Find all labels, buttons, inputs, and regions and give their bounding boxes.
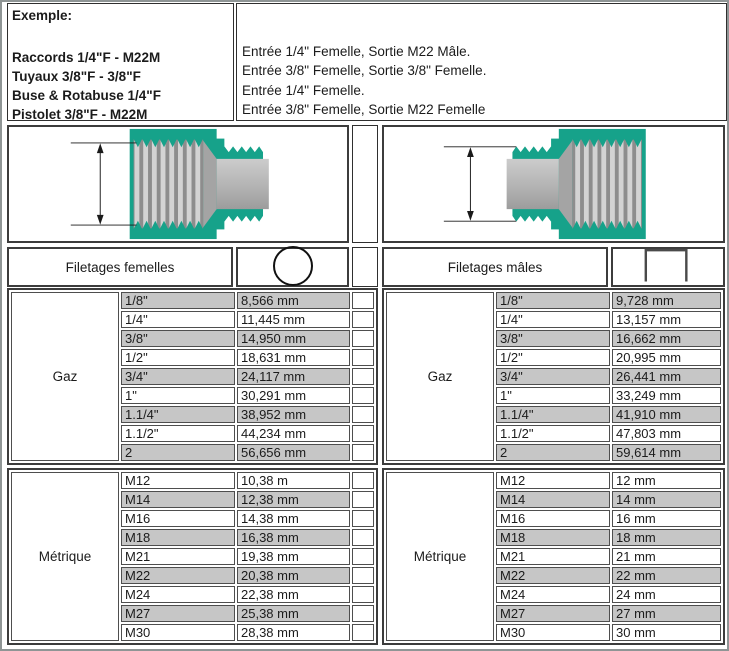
thread-size-cell: 3/8" bbox=[496, 330, 610, 347]
male-fitting-diagram-box bbox=[382, 125, 725, 243]
section-label: Gaz bbox=[386, 292, 494, 461]
male-metric-table: MétriqueM1212 mmM1414 mmM1616 mmM1818 mm… bbox=[382, 468, 725, 645]
thread-size-cell: M27 bbox=[121, 605, 235, 622]
thread-size-cell: 1" bbox=[121, 387, 235, 404]
spacer-cell bbox=[352, 425, 374, 442]
thread-size-cell: M24 bbox=[496, 586, 610, 603]
example-line: Tuyaux 3/8"F - 3/8"F bbox=[12, 67, 231, 86]
female-threads-header: Filetages femelles bbox=[7, 247, 233, 287]
diameter-value-cell: 14,950 mm bbox=[237, 330, 350, 347]
spacer-cell bbox=[352, 510, 374, 527]
spacer-cell bbox=[352, 330, 374, 347]
thread-size-cell: 1" bbox=[496, 387, 610, 404]
diameter-value-cell: 30,291 mm bbox=[237, 387, 350, 404]
thread-size-cell: 3/4" bbox=[121, 368, 235, 385]
diameter-value-cell: 21 mm bbox=[612, 548, 721, 565]
thread-size-cell: M14 bbox=[121, 491, 235, 508]
diameter-value-cell: 27 mm bbox=[612, 605, 721, 622]
thread-size-cell: M12 bbox=[496, 472, 610, 489]
diameter-value-cell: 24 mm bbox=[612, 586, 721, 603]
spacer-cell bbox=[352, 368, 374, 385]
diameter-value-cell: 41,910 mm bbox=[612, 406, 721, 423]
male-gaz-table: Gaz1/8"9,728 mm1/4"13,157 mm3/8"16,662 m… bbox=[382, 288, 725, 465]
spacer-cell bbox=[352, 624, 374, 641]
diameter-value-cell: 30 mm bbox=[612, 624, 721, 641]
diameter-value-cell: 16,38 mm bbox=[237, 529, 350, 546]
example-line: Raccords 1/4"F - M22M bbox=[12, 48, 231, 67]
diameter-value-cell: 9,728 mm bbox=[612, 292, 721, 309]
thread-size-cell: 3/8" bbox=[121, 330, 235, 347]
diameter-value-cell: 25,38 mm bbox=[237, 605, 350, 622]
thread-size-cell: M24 bbox=[121, 586, 235, 603]
thread-size-cell: 1.1/2" bbox=[121, 425, 235, 442]
thread-size-cell: M16 bbox=[121, 510, 235, 527]
thread-size-cell: M16 bbox=[496, 510, 610, 527]
section-label: Métrique bbox=[386, 472, 494, 641]
diameter-value-cell: 14 mm bbox=[612, 491, 721, 508]
example-line: Buse & Rotabuse 1/4"F bbox=[12, 86, 231, 105]
male-threads-label: Filetages mâles bbox=[448, 260, 543, 275]
thread-size-cell: 1.1/2" bbox=[496, 425, 610, 442]
female-fitting-diagram bbox=[9, 127, 347, 241]
diameter-value-cell: 11,445 mm bbox=[237, 311, 350, 328]
thread-size-cell: 1/4" bbox=[496, 311, 610, 328]
section-label: Gaz bbox=[11, 292, 119, 461]
diameter-value-cell: 24,117 mm bbox=[237, 368, 350, 385]
male-threads-header: Filetages mâles bbox=[382, 247, 608, 287]
description-box: Entrée 1/4" Femelle, Sortie M22 Mâle. En… bbox=[236, 3, 727, 121]
thread-size-cell: 1/2" bbox=[121, 349, 235, 366]
thread-size-cell: 1.1/4" bbox=[121, 406, 235, 423]
spacer-cell bbox=[352, 548, 374, 565]
diameter-value-cell: 8,566 mm bbox=[237, 292, 350, 309]
diameter-value-cell: 12,38 mm bbox=[237, 491, 350, 508]
spacer-cell bbox=[352, 387, 374, 404]
section-label: Métrique bbox=[11, 472, 119, 641]
description-line: Entrée 1/4" Femelle. bbox=[242, 81, 722, 100]
thread-size-cell: 2 bbox=[496, 444, 610, 461]
thread-size-cell: 2 bbox=[121, 444, 235, 461]
spacer-cell bbox=[352, 567, 374, 584]
female-gaz-table: Gaz1/8"8,566 mm1/4"11,445 mm3/8"14,950 m… bbox=[7, 288, 378, 465]
spacer-cell bbox=[352, 586, 374, 603]
thread-size-cell: M30 bbox=[496, 624, 610, 641]
diameter-value-cell: 47,803 mm bbox=[612, 425, 721, 442]
table-row: MétriqueM1210,38 m bbox=[11, 472, 374, 489]
diameter-value-cell: 22,38 mm bbox=[237, 586, 350, 603]
male-thread-symbol-cell bbox=[611, 247, 725, 287]
spacer-cell bbox=[352, 444, 374, 461]
thread-size-cell: M18 bbox=[121, 529, 235, 546]
diameter-value-cell: 59,614 mm bbox=[612, 444, 721, 461]
thread-size-cell: 1/8" bbox=[496, 292, 610, 309]
open-square-icon bbox=[613, 247, 723, 287]
diameter-value-cell: 38,952 mm bbox=[237, 406, 350, 423]
example-box: Exemple: Raccords 1/4"F - M22M Tuyaux 3/… bbox=[7, 3, 234, 121]
spacer-cell bbox=[352, 349, 374, 366]
diameter-value-cell: 20,995 mm bbox=[612, 349, 721, 366]
spacer-cell bbox=[352, 406, 374, 423]
diameter-value-cell: 56,656 mm bbox=[237, 444, 350, 461]
thread-size-cell: M21 bbox=[496, 548, 610, 565]
thread-size-cell: M18 bbox=[496, 529, 610, 546]
description-line: Entrée 1/4" Femelle, Sortie M22 Mâle. bbox=[242, 42, 722, 61]
female-threads-label: Filetages femelles bbox=[66, 260, 175, 275]
diameter-value-cell: 26,441 mm bbox=[612, 368, 721, 385]
thread-size-cell: 1.1/4" bbox=[496, 406, 610, 423]
header-spacer-cell bbox=[352, 247, 378, 287]
table-row: Gaz1/8"9,728 mm bbox=[386, 292, 721, 309]
spacer-cell bbox=[352, 472, 374, 489]
male-fitting-diagram bbox=[384, 127, 723, 241]
diameter-value-cell: 16,662 mm bbox=[612, 330, 721, 347]
diameter-value-cell: 16 mm bbox=[612, 510, 721, 527]
female-fitting-diagram-box bbox=[7, 125, 349, 243]
thread-size-cell: M22 bbox=[121, 567, 235, 584]
diameter-value-cell: 12 mm bbox=[612, 472, 721, 489]
example-line: Pistolet 3/8"F - M22M bbox=[12, 105, 231, 124]
thread-size-cell: M21 bbox=[121, 548, 235, 565]
spacer-cell bbox=[352, 605, 374, 622]
thread-size-cell: M27 bbox=[496, 605, 610, 622]
diameter-value-cell: 13,157 mm bbox=[612, 311, 721, 328]
diameter-value-cell: 28,38 mm bbox=[237, 624, 350, 641]
description-line: Entrée 3/8" Femelle, Sortie M22 Femelle bbox=[242, 100, 722, 119]
thread-size-cell: 1/2" bbox=[496, 349, 610, 366]
spacer-cell bbox=[352, 311, 374, 328]
diameter-value-cell: 10,38 m bbox=[237, 472, 350, 489]
diameter-value-cell: 18,631 mm bbox=[237, 349, 350, 366]
diameter-value-cell: 44,234 mm bbox=[237, 425, 350, 442]
table-row: Gaz1/8"8,566 mm bbox=[11, 292, 374, 309]
diameter-value-cell: 14,38 mm bbox=[237, 510, 350, 527]
diameter-value-cell: 18 mm bbox=[612, 529, 721, 546]
dimension-arrow bbox=[71, 143, 137, 225]
dimension-arrow bbox=[444, 147, 516, 221]
thread-size-cell: M14 bbox=[496, 491, 610, 508]
circle-icon bbox=[236, 247, 349, 287]
thread-size-cell: 1/8" bbox=[121, 292, 235, 309]
spacer-cell bbox=[352, 529, 374, 546]
diameter-value-cell: 22 mm bbox=[612, 567, 721, 584]
diagram-spacer-cell bbox=[352, 125, 378, 243]
thread-size-cell: 3/4" bbox=[496, 368, 610, 385]
female-metric-table: MétriqueM1210,38 mM1412,38 mmM1614,38 mm… bbox=[7, 468, 378, 645]
thread-size-cell: 1/4" bbox=[121, 311, 235, 328]
diameter-value-cell: 19,38 mm bbox=[237, 548, 350, 565]
thread-size-cell: M22 bbox=[496, 567, 610, 584]
thread-size-cell: M12 bbox=[121, 472, 235, 489]
table-row: MétriqueM1212 mm bbox=[386, 472, 721, 489]
female-thread-symbol-cell bbox=[236, 247, 349, 287]
spacer-cell bbox=[352, 491, 374, 508]
example-title: Exemple: bbox=[12, 7, 231, 25]
spacer-cell bbox=[352, 292, 374, 309]
diameter-value-cell: 33,249 mm bbox=[612, 387, 721, 404]
thread-size-cell: M30 bbox=[121, 624, 235, 641]
description-line: Entrée 3/8" Femelle, Sortie 3/8" Femelle… bbox=[242, 61, 722, 80]
diameter-value-cell: 20,38 mm bbox=[237, 567, 350, 584]
